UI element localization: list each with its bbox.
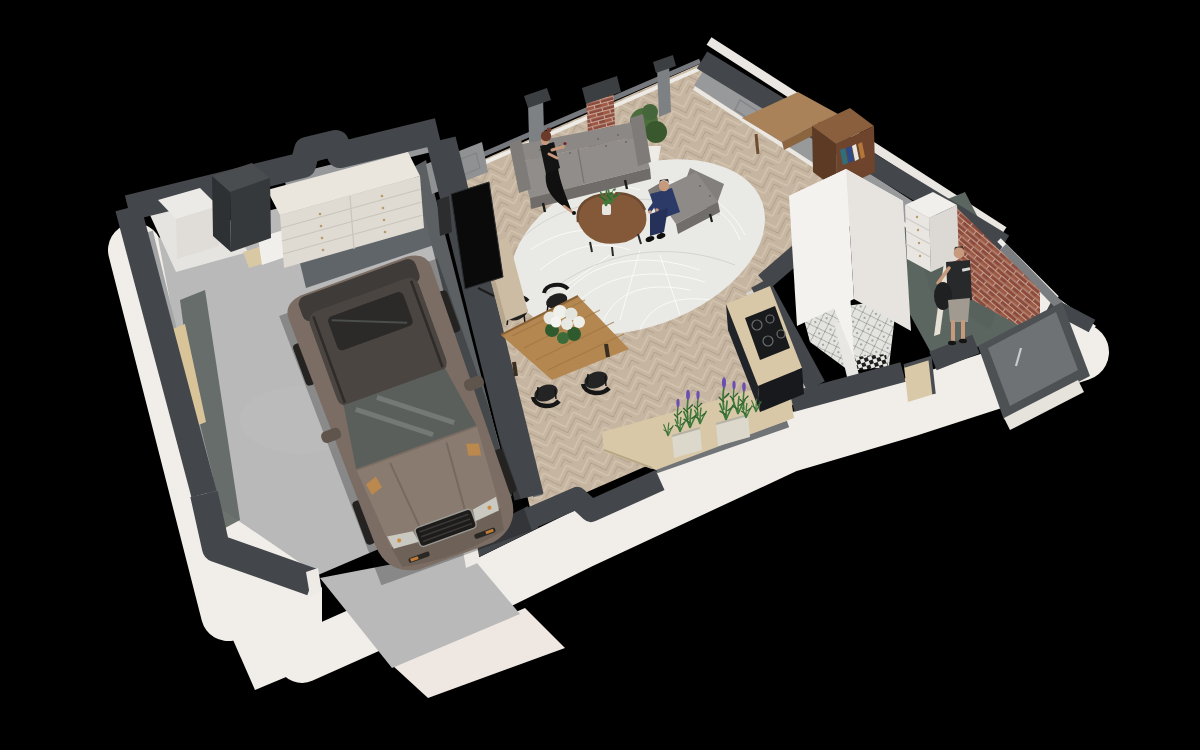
- hall-dresser: [905, 192, 959, 272]
- utility-unit: [212, 163, 271, 252]
- floorplan-render: [0, 0, 1200, 750]
- floorplan-svg: [0, 0, 1200, 750]
